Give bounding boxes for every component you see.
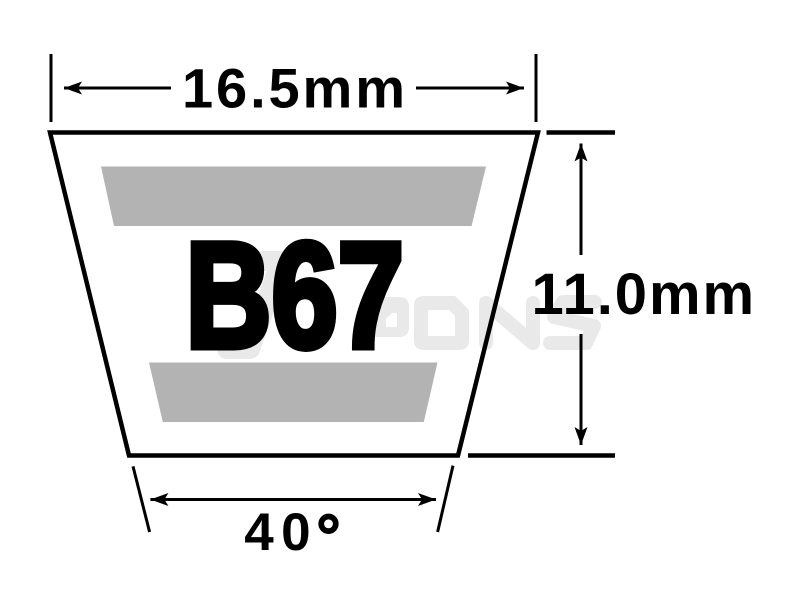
svg-text:11.0mm: 11.0mm: [532, 262, 755, 327]
svg-text:16.5mm: 16.5mm: [182, 57, 405, 120]
svg-text:B67: B67: [185, 211, 403, 379]
svg-text:40: 40: [244, 503, 318, 562]
